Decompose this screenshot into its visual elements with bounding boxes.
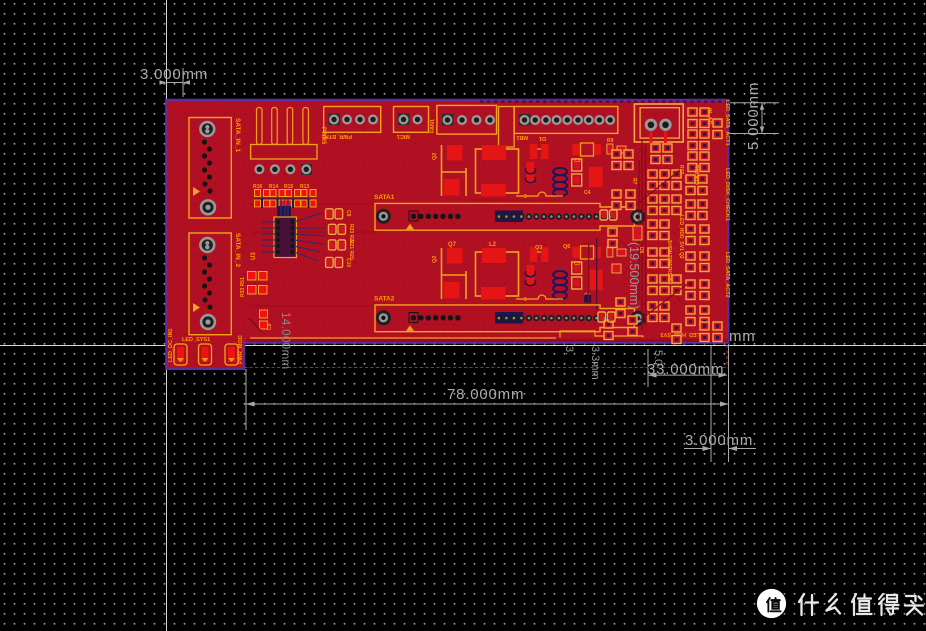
svg-text:L2: L2 <box>489 242 497 248</box>
svg-text:5: 5 <box>524 194 527 200</box>
svg-text:Q2: Q2 <box>432 153 438 160</box>
svg-text:LED_DISK_CHECK1: LED_DISK_CHECK1 <box>724 168 730 221</box>
svg-text:3.: 3. <box>563 346 575 355</box>
svg-text:PWR_BTN1: PWR_BTN1 <box>322 133 352 139</box>
svg-text:FAN1: FAN1 <box>430 119 436 133</box>
svg-text:Q6: Q6 <box>563 244 570 250</box>
svg-text:3.000mm: 3.000mm <box>140 66 208 83</box>
svg-text:Q7: Q7 <box>448 242 457 248</box>
svg-text:C9: C9 <box>267 323 273 330</box>
svg-text:LED_HDD_SV1: LED_HDD_SV1 <box>678 215 684 251</box>
svg-text:IN_AD: IN_AD <box>706 108 712 125</box>
svg-text:5.0: 5.0 <box>652 350 664 365</box>
svg-text:R17: R17 <box>678 165 684 174</box>
svg-text:U3: U3 <box>251 252 257 260</box>
svg-text:R7: R7 <box>631 178 637 185</box>
svg-text:PWR_MOD: PWR_MOD <box>238 335 244 364</box>
svg-text:SHDNJ2R67K5R54: SHDNJ2R67K5R54 <box>666 240 672 285</box>
svg-text:C8: C8 <box>345 210 351 217</box>
svg-text:(19.500mm): (19.500mm) <box>627 242 641 309</box>
svg-text:R33 R51: R33 R51 <box>240 277 246 297</box>
svg-text:MIC1: MIC1 <box>397 133 410 139</box>
svg-text:C10: C10 <box>345 258 351 267</box>
svg-text:Q2: Q2 <box>678 252 684 259</box>
svg-text:Q3: Q3 <box>535 245 542 251</box>
svg-text:mm: mm <box>729 328 756 345</box>
svg-text:R9: R9 <box>607 138 614 144</box>
svg-text:SATA1: SATA1 <box>374 194 395 201</box>
svg-text:C3: C3 <box>574 158 581 164</box>
svg-text:MB1: MB1 <box>516 134 528 140</box>
svg-text:LED_SATA_ACT2: LED_SATA_ACT2 <box>724 252 730 298</box>
svg-text:C4: C4 <box>584 190 591 196</box>
svg-text:LED_SYS1: LED_SYS1 <box>182 337 210 343</box>
svg-text:14.000mm: 14.000mm <box>279 312 291 370</box>
svg-text:R21 R20: R21 R20 <box>348 240 354 260</box>
svg-text:3.000mm: 3.000mm <box>685 432 753 449</box>
svg-text:D1: D1 <box>539 135 546 141</box>
svg-text:R18 R19: R18 R19 <box>693 165 699 185</box>
svg-text:SATA2: SATA2 <box>374 296 395 303</box>
svg-text:SATA_IN_2: SATA_IN_2 <box>234 233 241 267</box>
svg-text:5.000mm: 5.000mm <box>745 82 762 150</box>
svg-text:3.3mm: 3.3mm <box>589 346 601 380</box>
svg-text:78.000mm: 78.000mm <box>447 386 524 403</box>
svg-text:LED_SATA_ACT1: LED_SATA_ACT1 <box>724 100 730 146</box>
svg-text:SATA_IN_1: SATA_IN_1 <box>234 118 241 152</box>
svg-text:LED_DC_IN1: LED_DC_IN1 <box>168 328 174 362</box>
